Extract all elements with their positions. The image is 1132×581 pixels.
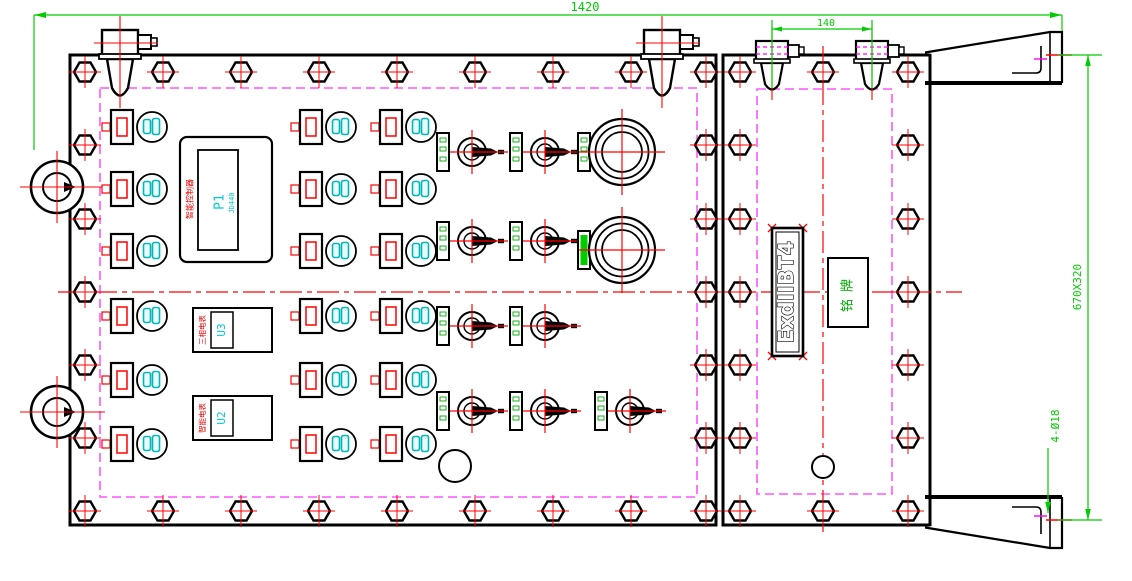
- ex-marking-plate: ExdIIBT4: [772, 228, 803, 356]
- meter-u2-model: U2: [215, 411, 228, 424]
- display-submodel: JD440: [228, 192, 236, 213]
- explosion-proof-box-front-view: 智能控制器 P1 JD440 三相电表 U3 智能电表 U2 ExdIIBT4 …: [0, 0, 1132, 581]
- meter-u3-model: U3: [215, 323, 228, 336]
- nameplate: 铭牌: [828, 258, 868, 327]
- cad-drawing-canvas: 智能控制器 P1 JD440 三相电表 U3 智能电表 U2 ExdIIBT4 …: [0, 0, 1132, 581]
- mounting-bracket-bottom: [925, 497, 1062, 548]
- mounting-bracket-top: [925, 32, 1062, 83]
- display-controller: 智能控制器 P1 JD440: [180, 137, 272, 262]
- meter-u3: 三相电表 U3: [193, 308, 272, 352]
- aux-hole: [439, 450, 471, 482]
- display-side-label: 智能控制器: [185, 179, 195, 219]
- dim-flange-size: 670X320: [1071, 264, 1084, 310]
- display-model: P1: [213, 194, 228, 210]
- nameplate-label: 铭牌: [840, 272, 856, 312]
- aux-hole: [812, 456, 834, 478]
- meter-u3-side-label: 三相电表: [197, 315, 207, 345]
- meter-u2-side-label: 智能电表: [197, 403, 207, 433]
- ex-marking-label: ExdIIBT4: [774, 241, 798, 344]
- dim-total-width: 1420: [571, 0, 600, 14]
- dim-mounting-holes: 4-Ø18: [1049, 409, 1062, 442]
- meter-u2: 智能电表 U2: [193, 396, 272, 440]
- dim-hinge-spacing: 140: [817, 18, 835, 29]
